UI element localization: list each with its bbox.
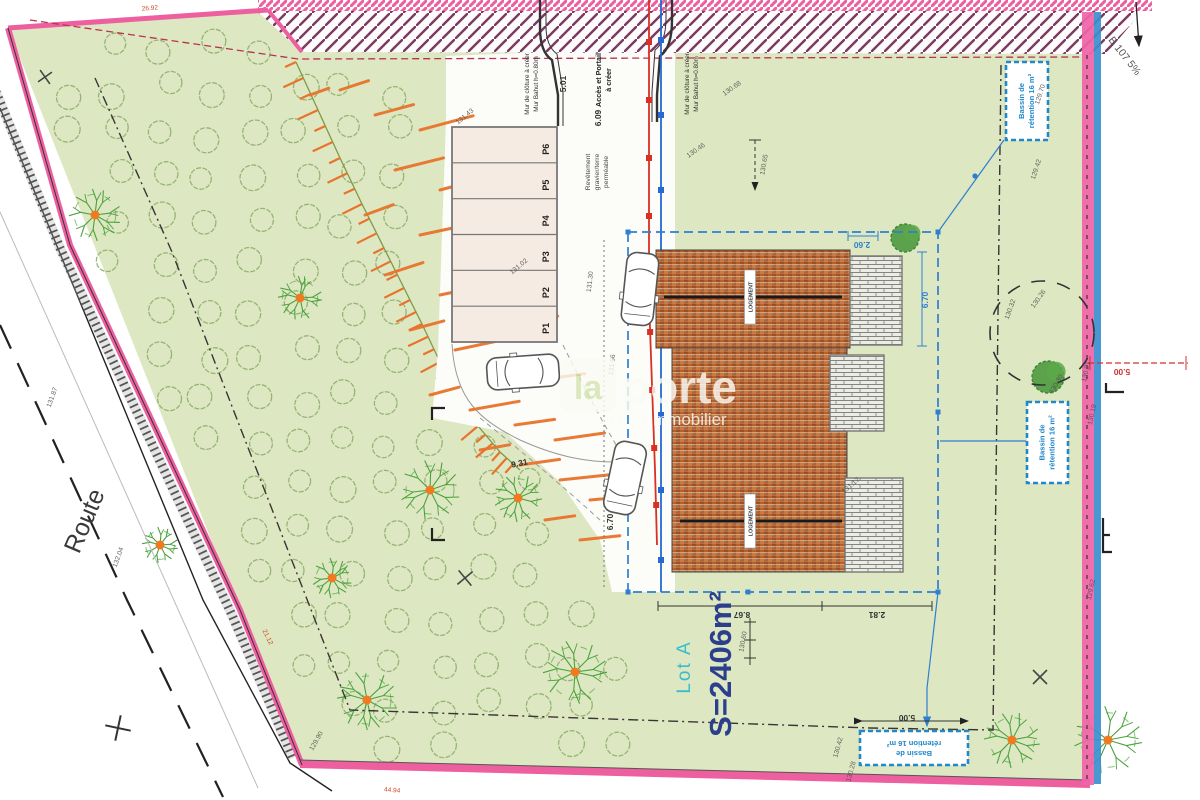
blue-marker <box>658 487 664 493</box>
tree-twig <box>170 544 176 546</box>
boundary-right-blue-band <box>1094 12 1101 784</box>
parking-block: P6P5P4P3P2P1 <box>452 127 557 342</box>
tree-twig <box>342 572 349 573</box>
tree-trunk-dot <box>328 574 337 583</box>
dimension-label: 6.70 <box>920 291 930 308</box>
envelope-node <box>936 410 941 415</box>
red-marker <box>647 329 653 335</box>
svg-text:LOGEMENT: LOGEMENT <box>749 281 755 312</box>
svg-text:Accès et Portail: Accès et Portail <box>594 53 603 107</box>
parking-space-label: P2 <box>541 287 551 298</box>
adjacent-lot-label: B 107 5% <box>1106 34 1143 77</box>
blue-marker <box>658 112 664 118</box>
basin-label-line1: Bassin de <box>1017 83 1026 119</box>
dimension-label: 2.81 <box>868 610 885 620</box>
tree-branch <box>1105 706 1111 740</box>
tree-twig <box>165 554 166 560</box>
tree-branch <box>1108 740 1128 767</box>
blue-marker <box>658 557 664 563</box>
basin-label-line2: rétention 16 m² <box>1048 415 1057 470</box>
terrace-upper <box>850 256 902 345</box>
site-plan-scan: P6P5P4P3P2P1 LOGEMENT LOGEMENT <box>0 0 1200 800</box>
blue-marker <box>658 187 664 193</box>
tree-trunk-dot <box>1008 736 1017 745</box>
tree-branch <box>1108 740 1142 746</box>
tree-twig <box>161 529 164 535</box>
tree-twig <box>1127 736 1139 738</box>
site-plan-svg: P6P5P4P3P2P1 LOGEMENT LOGEMENT <box>0 0 1200 800</box>
tree-twig <box>446 485 457 486</box>
dimension-label: 6.70 <box>605 513 615 530</box>
svg-text:gravier/terre: gravier/terre <box>594 153 601 190</box>
road-top-pink-strip <box>258 0 1152 11</box>
svg-text:perméable: perméable <box>603 156 610 188</box>
ridge-label-b: LOGEMENT <box>745 494 756 548</box>
dimension-label: 5.01 <box>558 75 568 92</box>
tree-trunk-dot <box>296 294 305 303</box>
tree-trunk-dot <box>571 668 580 677</box>
boundary-length-label: 26.92 <box>142 4 159 12</box>
parking-space-label: P5 <box>541 180 551 191</box>
blue-marker <box>658 37 664 43</box>
tree-trunk-dot <box>514 494 523 503</box>
parking-space-label: P6 <box>541 144 551 155</box>
tree-deciduous <box>142 527 178 563</box>
envelope-node <box>746 590 751 595</box>
lot-area-label: S=2406m² <box>703 591 738 737</box>
survey-plus <box>103 713 134 744</box>
red-marker <box>646 155 652 161</box>
boundary-length-label: 44.94 <box>384 786 401 794</box>
svg-text:Mur Bahut h=0.80m: Mur Bahut h=0.80m <box>693 56 700 111</box>
tree-twig <box>522 511 523 519</box>
watermark: la porte le sens de l'immobilier <box>560 358 737 429</box>
envelope-node <box>626 230 631 235</box>
basin-label-line1: Bassin de <box>896 749 932 758</box>
svg-text:LOGEMENT: LOGEMENT <box>749 505 755 536</box>
dimension-label: 6.09 <box>593 109 603 126</box>
tree-trunk-dot <box>426 486 435 495</box>
tree-twig <box>1110 711 1116 721</box>
elevation-label: 131.87 <box>46 386 60 408</box>
parking-space-label: P4 <box>541 215 551 226</box>
basin-label-line1: Bassin de <box>1038 425 1047 461</box>
route-label: Route <box>59 485 111 557</box>
dimension-label: 5.00 <box>898 713 915 723</box>
tree-trunk-dot <box>156 541 165 550</box>
envelope-node <box>626 590 631 595</box>
tree-trunk-dot <box>91 211 100 220</box>
lot-a-label: Lot A <box>674 640 695 693</box>
dimension-label: 8.67 <box>733 610 750 620</box>
clump-blob <box>904 225 921 242</box>
basin-label-line2: rétention 16 m² <box>886 739 941 748</box>
svg-text:Revêtement: Revêtement <box>585 154 592 191</box>
tree-trunk-dot <box>363 696 372 705</box>
svg-text:Mur de clôture à créer: Mur de clôture à créer <box>684 53 691 115</box>
boundary-right-pink-band <box>1082 12 1094 785</box>
dimension-label: 5.00 <box>1113 367 1130 377</box>
watermark-logo-text: la <box>574 369 603 407</box>
dimension-label: 2.60 <box>853 240 870 250</box>
red-marker <box>651 445 657 451</box>
red-marker <box>646 39 652 45</box>
red-marker <box>646 213 652 219</box>
tree-twig <box>1116 757 1117 769</box>
watermark-brand: porte <box>622 361 737 413</box>
red-marker <box>646 97 652 103</box>
surface-label: Revêtement gravier/terre perméable <box>585 153 610 190</box>
tree-trunk-dot <box>1104 736 1113 745</box>
elevation-label: 132.04 <box>112 546 126 568</box>
terrace-lower <box>845 478 903 572</box>
red-marker <box>653 502 659 508</box>
watermark-tagline: le sens de l'immobilier <box>560 410 727 429</box>
ridge-label-a: LOGEMENT <box>745 270 756 324</box>
svg-text:Mur de clôture à créer: Mur de clôture à créer <box>524 53 531 115</box>
parking-space-label: P3 <box>541 251 551 262</box>
tree-branch <box>1100 740 1108 773</box>
svg-text:à créer: à créer <box>604 68 613 92</box>
svg-text:Mur Bahut h=0.80m: Mur Bahut h=0.80m <box>533 56 540 111</box>
parking-space-label: P1 <box>541 323 551 334</box>
terrace-middle <box>830 355 884 431</box>
